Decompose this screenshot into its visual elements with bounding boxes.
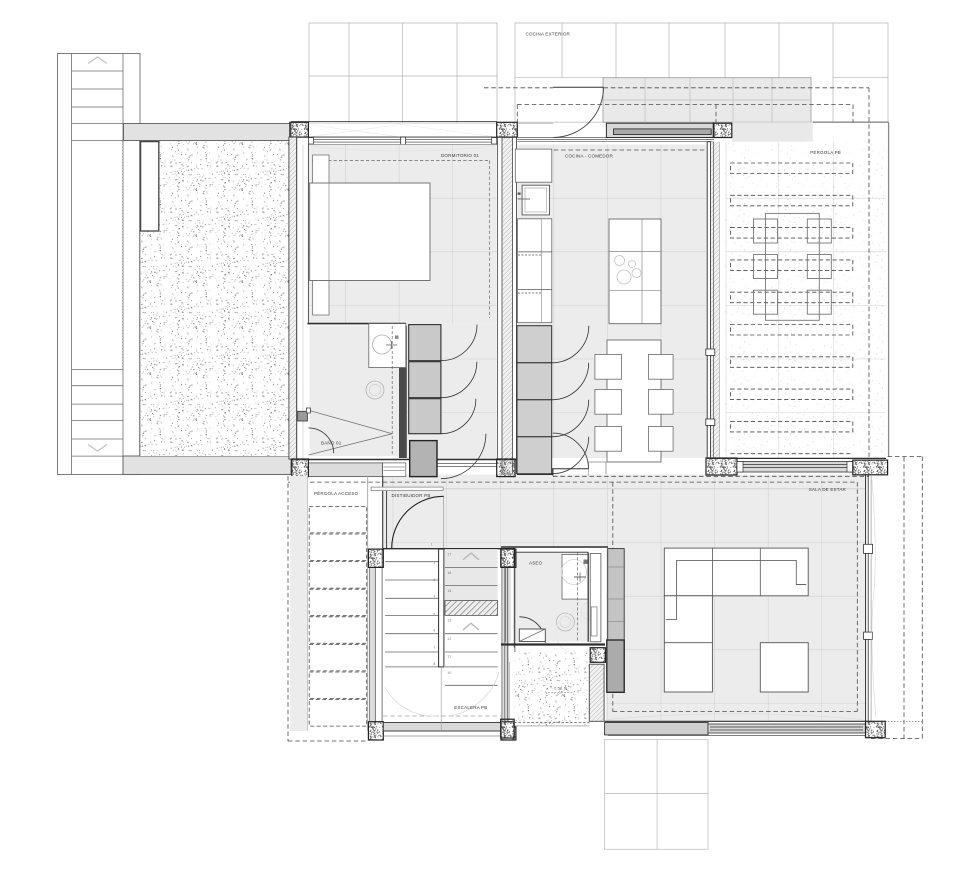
svg-text:3: 3 [433, 578, 435, 582]
svg-text:1: 1 [431, 542, 433, 546]
svg-text:BAÑO 01: BAÑO 01 [321, 440, 342, 446]
svg-text:4: 4 [433, 595, 435, 599]
svg-text:ESCALERA PB: ESCALERA PB [454, 705, 487, 710]
svg-text:8: 8 [433, 662, 435, 666]
svg-text:6: 6 [433, 629, 435, 633]
svg-text:PÉRGOLA PB: PÉRGOLA PB [810, 149, 841, 155]
svg-text:ASEO: ASEO [529, 561, 543, 566]
svg-text:SALA DE ESTAR: SALA DE ESTAR [809, 487, 847, 492]
svg-text:7: 7 [433, 646, 435, 650]
svg-text:11: 11 [447, 654, 451, 658]
svg-text:2: 2 [433, 561, 435, 565]
svg-text:PÉRGOLA ACCESO: PÉRGOLA ACCESO [314, 490, 359, 496]
svg-text:COCINA - COMEDOR: COCINA - COMEDOR [565, 154, 614, 159]
svg-text:DISTIBUIDOR PB: DISTIBUIDOR PB [392, 493, 431, 498]
svg-text:16: 16 [447, 571, 451, 575]
svg-text:COCINA EXTERIOR: COCINA EXTERIOR [526, 32, 571, 37]
svg-text:13: 13 [447, 619, 451, 623]
svg-text:5: 5 [433, 613, 435, 617]
svg-text:DORMITORIO 01: DORMITORIO 01 [441, 153, 479, 158]
svg-text:-1,50 m.: -1,50 m. [552, 686, 568, 691]
svg-text:12: 12 [447, 637, 451, 641]
svg-text:17: 17 [447, 553, 451, 557]
svg-text:15: 15 [447, 589, 451, 593]
svg-text:10: 10 [447, 671, 451, 675]
